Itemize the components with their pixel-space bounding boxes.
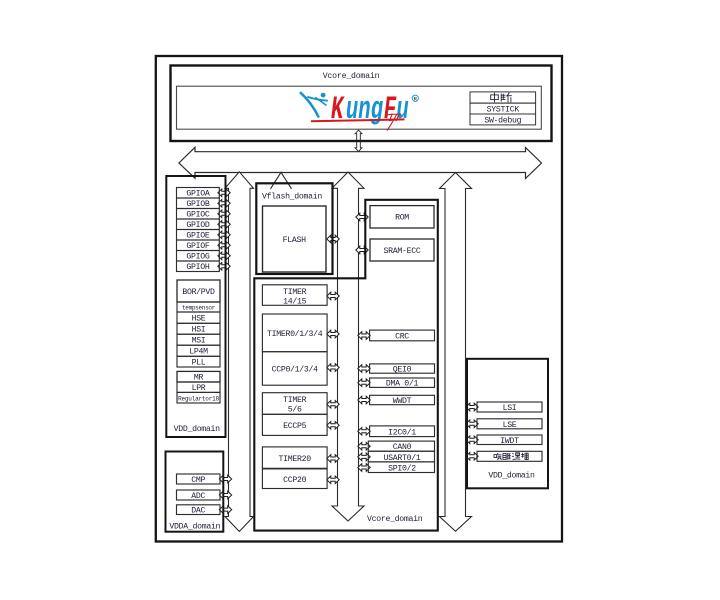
svg-text:TIMER0/1/3/4: TIMER0/1/3/4: [267, 329, 323, 339]
svg-text:SPI0/2: SPI0/2: [388, 464, 416, 474]
svg-text:Vflash_domain: Vflash_domain: [262, 191, 322, 201]
svg-text:CMP: CMP: [191, 476, 205, 485]
svg-text:SRAM-ECC: SRAM-ECC: [384, 247, 421, 256]
svg-text:BOR/PVD: BOR/PVD: [182, 287, 215, 297]
svg-text:Vcore_domain: Vcore_domain: [367, 514, 423, 524]
svg-text:GPIOC: GPIOC: [186, 211, 209, 220]
svg-text:I2C0/1: I2C0/1: [388, 427, 416, 437]
svg-text:GPIOB: GPIOB: [186, 200, 209, 209]
svg-text:tempsensor: tempsensor: [182, 305, 216, 312]
svg-text:TIMER: TIMER: [283, 396, 306, 405]
svg-text:5/6: 5/6: [288, 404, 302, 414]
svg-text:VDD_domain: VDD_domain: [174, 424, 221, 434]
svg-text:LSI: LSI: [503, 404, 517, 413]
svg-text:VDD_domain: VDD_domain: [488, 470, 535, 480]
svg-text:ADC: ADC: [191, 492, 205, 501]
svg-text:LSE: LSE: [503, 421, 517, 430]
svg-text:Vcore_domain: Vcore_domain: [323, 71, 380, 81]
svg-text:QEI0: QEI0: [393, 365, 412, 374]
svg-text:HSI: HSI: [192, 326, 206, 335]
svg-text:GPIOE: GPIOE: [186, 232, 209, 241]
svg-text:GPIOA: GPIOA: [186, 190, 209, 199]
svg-text:IWDT: IWDT: [500, 437, 519, 446]
svg-text:LP4M: LP4M: [189, 348, 208, 357]
svg-text:TIMER20: TIMER20: [279, 455, 312, 464]
svg-text:GPIOG: GPIOG: [186, 253, 209, 262]
svg-text:MSI: MSI: [192, 337, 206, 346]
svg-text:CCP0/1/3/4: CCP0/1/3/4: [272, 364, 319, 374]
svg-text:WWDT: WWDT: [393, 397, 412, 406]
svg-text:u: u: [396, 92, 408, 129]
svg-text:FLASH: FLASH: [283, 236, 306, 245]
svg-text:MR: MR: [194, 374, 204, 383]
svg-text:TIMER: TIMER: [283, 288, 306, 297]
svg-text:GPIOD: GPIOD: [186, 221, 209, 230]
svg-text:VDDA_domain: VDDA_domain: [169, 522, 220, 532]
svg-text:DMA 0/1: DMA 0/1: [386, 379, 419, 389]
svg-text:CRC: CRC: [395, 333, 409, 342]
svg-text:F: F: [384, 92, 397, 129]
svg-text:SW-debug: SW-debug: [484, 116, 521, 126]
svg-text:GPIOH: GPIOH: [186, 263, 209, 272]
svg-text:PLL: PLL: [192, 359, 206, 368]
svg-text:K: K: [331, 92, 345, 129]
svg-text:14/15: 14/15: [283, 297, 306, 307]
svg-text:ECCP5: ECCP5: [283, 422, 306, 431]
svg-text:DAC: DAC: [191, 506, 205, 515]
svg-text:Regulartor18: Regulartor18: [178, 395, 219, 402]
svg-text:ung: ung: [346, 92, 384, 129]
svg-text:HSE: HSE: [192, 315, 206, 324]
svg-text:SYSTICK: SYSTICK: [487, 106, 520, 115]
svg-text:ROM: ROM: [395, 214, 409, 223]
svg-text:CCP20: CCP20: [283, 476, 306, 485]
svg-text:GPIOF: GPIOF: [186, 242, 209, 251]
